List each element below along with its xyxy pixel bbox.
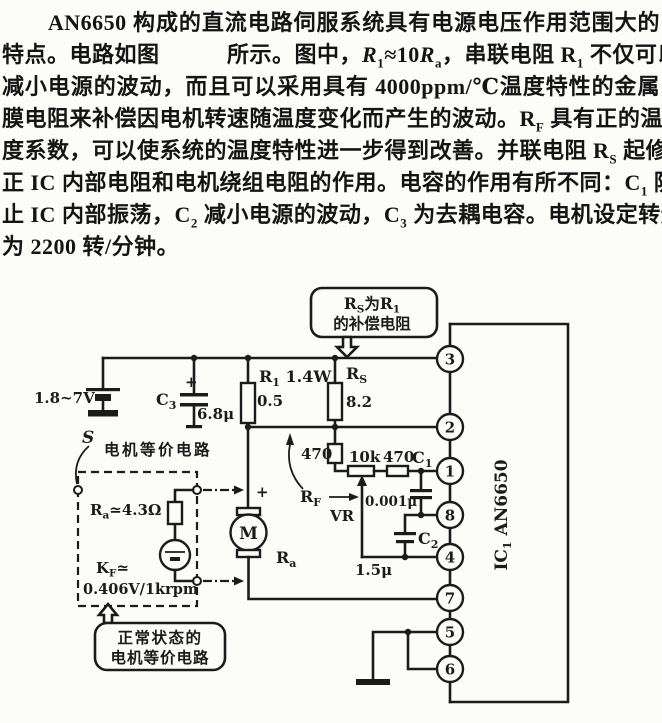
ic-pin-3: 3	[437, 346, 463, 372]
pot-value: 10k	[349, 448, 381, 466]
c1-label: C1	[412, 448, 432, 470]
ground-symbol	[356, 679, 390, 685]
pin-number: 8	[445, 507, 455, 525]
ic-pin-6: 6	[437, 656, 463, 682]
switch-s-label: S	[82, 428, 94, 448]
callout-rs-compensation: RS为R1 的补偿电阻	[311, 288, 437, 357]
ground-net	[356, 629, 437, 685]
ic-pin-7: 7	[437, 585, 463, 611]
ic-pin-4: 4	[437, 544, 463, 570]
paragraph-line: 止 IC 内部振荡，C2 减小电源的波动，C3 为去耦电容。电机设定转速	[2, 199, 660, 231]
paragraph-line: AN6650 构成的直流电路伺服系统具有电源电压作用范围大的	[2, 7, 660, 39]
pin-number: 4	[445, 549, 455, 567]
dashdot-arrow-top	[203, 486, 244, 495]
rs-value: 8.2	[346, 393, 372, 411]
resistor-rs: RS 8.2	[328, 358, 372, 427]
paragraph-line: 特点。电路如图 所示。图中，R1≈10Ra，串联电阻 R1 不仅可以	[2, 39, 660, 71]
ic-an6650: IC1 AN6650	[450, 324, 568, 702]
motor-m-label: M	[239, 524, 258, 544]
intro-paragraph: AN6650 构成的直流电路伺服系统具有电源电压作用范围大的 特点。电路如图 所…	[0, 7, 662, 263]
pin-number: 5	[445, 624, 455, 642]
callout-bottom-line1: 正常状态的	[117, 628, 202, 647]
pin-number: 6	[445, 661, 455, 679]
rf-label: RF	[300, 487, 321, 509]
voltage-source	[160, 540, 190, 570]
pin-number: 3	[445, 351, 455, 369]
motor-plus-sign: +	[256, 483, 269, 501]
rs-label: RS	[346, 364, 367, 386]
equiv-kf-label: KF≃	[96, 559, 129, 580]
equiv-kf-value: 0.406V/1krpm	[83, 581, 199, 598]
paragraph-line: 膜电阻来补偿因电机转速随温度变化而产生的波动。RF 具有正的温	[2, 103, 660, 135]
r470b-value: 470	[383, 448, 414, 466]
callout-top-line2: 的补偿电阻	[333, 314, 411, 333]
ic-pin-8: 8	[437, 502, 463, 528]
resistor-470-vertical: 470	[301, 427, 348, 471]
ic-pin-2: 2	[437, 414, 463, 440]
c3-label: C3	[156, 390, 176, 412]
r470a-value: 470	[301, 445, 332, 463]
capacitor-c3: + C3 6.8μ	[156, 358, 234, 428]
equiv-ra-label: Ra≃4.3Ω	[90, 501, 161, 522]
c3-value: 6.8μ	[197, 405, 234, 423]
paragraph-line: 度系数，可以使系统的温度特性进一步得到改善。并联电阻 RS 起修	[2, 135, 660, 167]
callout-bottom-line2: 电机等价电路	[110, 648, 209, 667]
pin-number: 2	[445, 419, 455, 437]
c3-plus-sign: +	[185, 373, 198, 391]
motor-ra-label: Ra	[276, 548, 296, 570]
pin-number: 7	[445, 590, 455, 608]
paragraph-line: 为 2200 转/分钟。	[2, 231, 660, 263]
resistor-r1: R1 1.4W 0.5	[241, 358, 332, 427]
equiv-box-title: 电机等价电路	[104, 440, 212, 459]
capacitor-c2: C2 1.5μ	[355, 529, 438, 579]
circuit-schematic: IC1 AN6650 1.8~7V + C3 6.8μ	[0, 263, 662, 723]
paragraph-line: 正 IC 内部电阻和电机绕组电阻的作用。电容的作用有所不同：C1 防	[2, 167, 660, 199]
r1-value: 0.5	[257, 392, 283, 410]
r1-label: R1 1.4W	[259, 367, 332, 389]
dashdot-arrow-bottom	[203, 577, 244, 586]
battery-voltage-label: 1.8~7V	[34, 389, 95, 407]
scanned-book-page: AN6650 构成的直流电路伺服系统具有电源电压作用范围大的 特点。电路如图 所…	[0, 0, 662, 723]
c1-value: 0.001μ	[365, 494, 417, 510]
c2-label: C2	[418, 529, 438, 551]
ic-label: IC1 AN6650	[492, 459, 514, 570]
ic-pin-1: 1	[437, 458, 463, 484]
vr-label: VR	[329, 507, 355, 525]
motor-equivalent-box: S 电机等价电路 Ra≃4.3Ω KF≃ 0.406V/1krpm	[74, 428, 244, 606]
pin-number: 1	[445, 463, 455, 481]
ic-pin-5: 5	[437, 619, 463, 645]
paragraph-line: 减小电源的波动，而且可以采用具有 4000ppm/℃温度特性的金属	[2, 71, 660, 103]
battery: 1.8~7V	[34, 358, 120, 417]
c2-value: 1.5μ	[355, 561, 392, 579]
callout-normal-state: 正常状态的 电机等价电路	[95, 604, 225, 670]
callout-top-line1: RS为R1	[344, 294, 400, 316]
